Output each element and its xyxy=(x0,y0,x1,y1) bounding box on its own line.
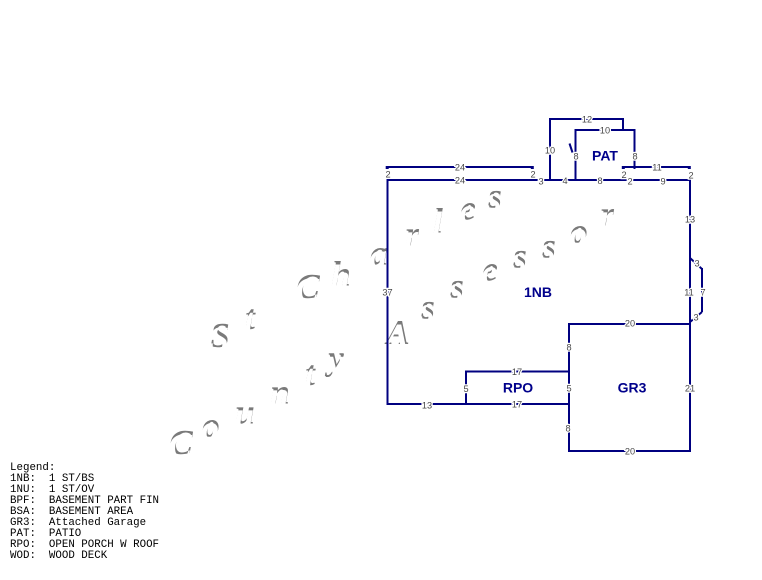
svg-text:20: 20 xyxy=(625,447,635,457)
svg-text:h: h xyxy=(330,258,349,297)
svg-text:u: u xyxy=(234,396,253,435)
svg-text:11: 11 xyxy=(684,288,694,298)
svg-text:3: 3 xyxy=(538,177,543,187)
svg-text:1NB: 1NB xyxy=(524,284,552,300)
svg-text:GR3: GR3 xyxy=(618,380,647,396)
svg-text:17: 17 xyxy=(512,400,522,410)
svg-text:t: t xyxy=(304,358,315,397)
svg-text:e: e xyxy=(481,253,497,292)
svg-text:4: 4 xyxy=(562,176,567,186)
svg-text:21: 21 xyxy=(685,384,695,394)
svg-text:12: 12 xyxy=(582,115,592,125)
svg-text:RPO: RPO xyxy=(503,380,533,396)
svg-text:a: a xyxy=(369,237,387,276)
svg-text:24: 24 xyxy=(455,176,465,186)
svg-text:s: s xyxy=(419,291,434,330)
svg-text:11: 11 xyxy=(652,163,662,173)
svg-text:24: 24 xyxy=(455,163,465,173)
svg-text:o: o xyxy=(201,409,219,448)
svg-text:e: e xyxy=(459,192,475,231)
svg-text:3: 3 xyxy=(693,313,698,323)
svg-text:2: 2 xyxy=(688,171,693,181)
svg-text:13: 13 xyxy=(685,215,695,225)
svg-text:s: s xyxy=(486,180,501,219)
svg-text:C: C xyxy=(169,427,193,466)
svg-text:s: s xyxy=(448,270,463,309)
svg-text:8: 8 xyxy=(565,424,570,434)
svg-text:5: 5 xyxy=(463,384,468,394)
svg-text:17: 17 xyxy=(512,367,522,377)
svg-text:2: 2 xyxy=(621,170,626,180)
svg-text:10: 10 xyxy=(600,126,610,136)
svg-text:7: 7 xyxy=(700,288,705,298)
svg-text:9: 9 xyxy=(660,177,665,187)
svg-text:y: y xyxy=(323,342,343,381)
svg-text:o: o xyxy=(569,215,587,254)
svg-text:8: 8 xyxy=(597,176,602,186)
svg-text:37: 37 xyxy=(382,288,392,298)
svg-text:r: r xyxy=(599,198,613,237)
svg-text:8: 8 xyxy=(632,152,637,162)
svg-text:l: l xyxy=(432,205,442,244)
svg-text:s: s xyxy=(511,240,526,279)
svg-text:t: t xyxy=(244,302,255,341)
svg-text:5: 5 xyxy=(566,384,571,394)
svg-text:13: 13 xyxy=(422,401,432,411)
svg-text:2: 2 xyxy=(385,170,390,180)
svg-text:10: 10 xyxy=(545,146,555,156)
svg-text:8: 8 xyxy=(566,343,571,353)
svg-text:2: 2 xyxy=(627,177,632,187)
svg-text:C: C xyxy=(296,271,320,310)
svg-text:n: n xyxy=(269,376,288,415)
svg-text:S: S xyxy=(209,320,228,359)
svg-text:2: 2 xyxy=(530,170,535,180)
svg-text:20: 20 xyxy=(625,319,635,329)
svg-text:PAT: PAT xyxy=(592,148,618,164)
svg-text:8: 8 xyxy=(573,152,578,162)
svg-text:s: s xyxy=(540,230,555,269)
svg-text:r: r xyxy=(404,218,418,257)
svg-text:3: 3 xyxy=(694,259,699,269)
